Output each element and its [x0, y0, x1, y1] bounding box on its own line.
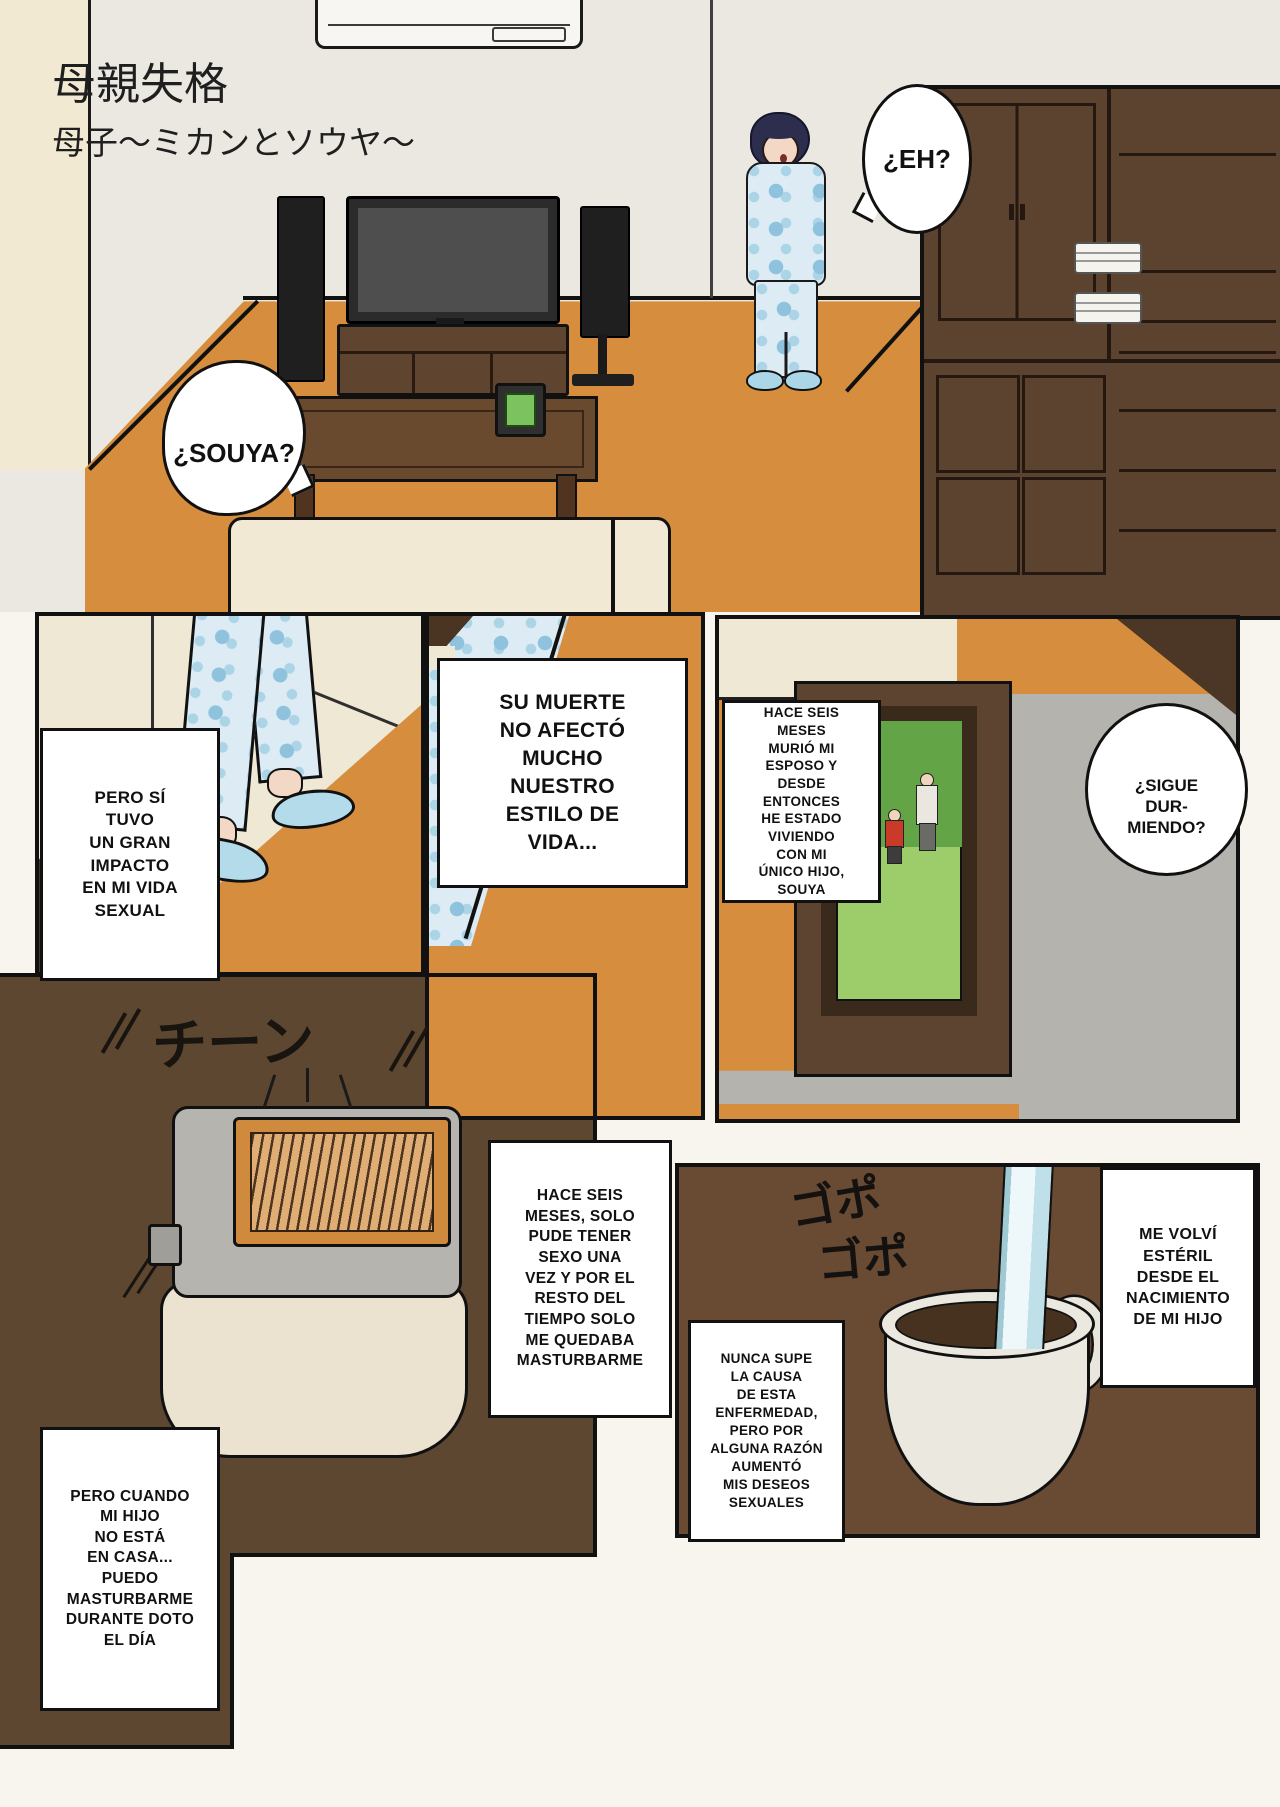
toast-pop-line — [306, 1068, 309, 1102]
character-hair-fringe — [758, 126, 800, 139]
caption-su-muerte: SU MUERTE NO AFECTÓ MUCHO NUESTRO ESTILO… — [437, 658, 688, 888]
shelf — [1119, 270, 1276, 273]
photo-mother-legs — [919, 823, 936, 851]
shelf — [1119, 351, 1276, 354]
door-handle — [1009, 204, 1014, 220]
shelf — [1119, 153, 1276, 156]
air-conditioner — [315, 0, 583, 49]
sofa — [228, 517, 671, 619]
toaster — [172, 1106, 462, 1298]
caption-pero-cuando: PERO CUANDO MI HIJO NO ESTÁ EN CASA... P… — [40, 1427, 220, 1711]
speaker-left — [277, 196, 325, 382]
caption-pero-si: PERO SÍ TUVO UN GRAN IMPACTO EN MI VIDA … — [40, 728, 220, 981]
speaker-right-pole — [598, 334, 607, 376]
speaker-right-base — [572, 374, 634, 386]
photo-child-body — [885, 820, 904, 848]
plate-stack — [1074, 292, 1142, 324]
plate-stack — [1074, 242, 1142, 274]
wall-corner-line — [710, 0, 713, 298]
living-room-scene: 母親失格 母子～ミカンとソウヤ～ — [0, 0, 1280, 612]
shelf — [1119, 409, 1276, 412]
door-handle — [1020, 204, 1025, 220]
caption-hace-seis-solo: HACE SEIS MESES, SOLO PUDE TENER SEXO UN… — [488, 1140, 672, 1418]
coffee-table — [282, 396, 598, 482]
tv-screen — [358, 208, 548, 312]
television — [346, 196, 560, 324]
green-screen — [505, 393, 536, 427]
shelf — [1119, 469, 1276, 472]
pajama-pants — [754, 280, 818, 378]
slipper — [784, 370, 822, 391]
caption-nunca-supe: NUNCA SUPE LA CAUSA DE ESTA ENFERMEDAD, … — [688, 1320, 845, 1542]
coffee-surface — [895, 1301, 1077, 1349]
pouring-water-stream — [994, 1165, 1054, 1349]
sfx-toaster-ding: チーン — [151, 995, 316, 1081]
photo-mother-body — [916, 785, 938, 825]
pajama-top — [746, 162, 826, 286]
slipper — [746, 370, 784, 391]
cabinet-lower-door — [1022, 477, 1106, 575]
shelf — [1119, 320, 1276, 323]
cabinet-lower-door — [1022, 375, 1106, 473]
page-subtitle-japanese: 母子～ミカンとソウヤ～ — [52, 116, 552, 162]
caption-hace-seis-murio: HACE SEIS MESES MURIÓ MI ESPOSO Y DESDE … — [722, 700, 881, 903]
shelf — [1119, 529, 1276, 532]
wooden-cabinet — [920, 85, 1280, 620]
speaker-right — [580, 206, 630, 338]
mother-character — [742, 112, 837, 394]
floor-strip — [719, 1104, 1019, 1123]
cabinet-lower-door — [936, 477, 1020, 575]
photo-child-legs — [887, 846, 902, 864]
cabinet-lower-door — [936, 375, 1020, 473]
ac-vent — [492, 27, 566, 42]
ac-seam-line — [328, 24, 570, 27]
manga-page: 母親失格 母子～ミカンとソウヤ～ — [0, 0, 1280, 1807]
caption-me-volvi: ME VOLVÍ ESTÉRIL DESDE EL NACIMIENTO DE … — [1100, 1167, 1256, 1388]
photo-device-on-table — [495, 383, 546, 437]
sofa-armrest-line — [611, 520, 615, 616]
speech-bubble-eh: ¿EH? — [862, 84, 972, 234]
page-title-japanese: 母親失格 — [52, 48, 512, 108]
speech-bubble-sigue-durmiendo: ¿SIGUE DUR- MIENDO? — [1085, 703, 1248, 876]
toaster-slot — [233, 1117, 451, 1247]
toast — [250, 1132, 434, 1232]
toaster-lever — [148, 1224, 182, 1266]
sfx-pour-gopo: ゴポ — [814, 1219, 911, 1293]
